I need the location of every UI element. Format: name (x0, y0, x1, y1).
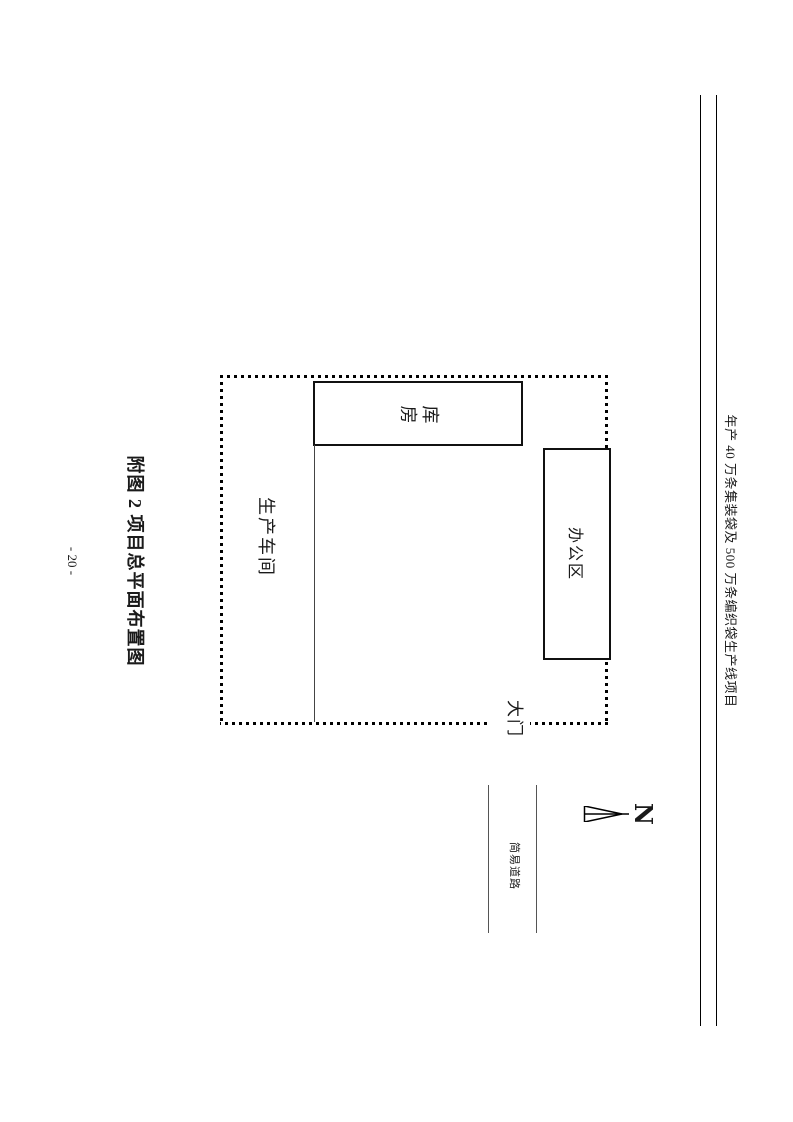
page-number: - 20 - (64, 0, 80, 1122)
gate-label: 大门 (504, 700, 529, 738)
site-boundary-edge-right-upper (530, 722, 608, 725)
site-boundary-edge-right-lower (220, 722, 487, 725)
road-edge-near (536, 785, 537, 933)
header-project-title: 年产 40 万条集装袋及 500 万条编织袋生产线项目 (722, 0, 741, 1122)
workshop-divider-line (314, 445, 315, 722)
document-page: 年产 40 万条集装袋及 500 万条编织袋生产线项目 库房 生产车间 办公区 … (0, 0, 793, 1122)
warehouse-box: 库房 (313, 381, 523, 446)
figure-caption: 附图 2 项目总平面布置图 (123, 0, 149, 1122)
workshop-label: 生产车间 (254, 497, 280, 577)
site-boundary-edge-bottom (220, 375, 223, 725)
road-label: 简易道路 (507, 842, 523, 890)
north-label: N (629, 799, 658, 829)
office-box: 办公区 (543, 448, 611, 660)
north-arrow-icon (578, 806, 629, 822)
header-rule-top (716, 95, 717, 1026)
site-boundary-edge-left (220, 375, 608, 378)
road-edge-far (488, 785, 489, 933)
office-label: 办公区 (565, 527, 589, 581)
warehouse-label: 库房 (396, 401, 440, 427)
header-rule-bottom (700, 95, 701, 1026)
